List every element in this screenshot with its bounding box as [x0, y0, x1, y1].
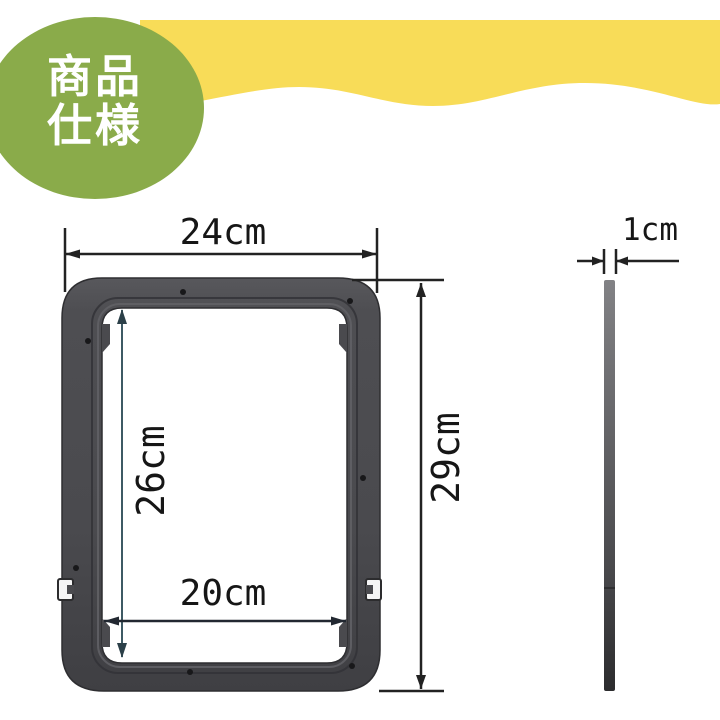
dimension-inner-height [117, 309, 127, 658]
dimension-label-inner-height: 26cm [132, 425, 170, 517]
screw-holes [73, 289, 366, 675]
dimension-label-thickness: 1cm [612, 215, 688, 246]
badge-title: 商品 仕様 [16, 52, 174, 150]
dimension-inner-width [104, 617, 346, 626]
dimension-thickness [577, 249, 679, 274]
side-profile-bar [604, 280, 615, 691]
frame-side-view [604, 280, 615, 691]
dimension-label-outer-height: 29cm [427, 412, 465, 504]
badge-title-line1: 商品 [16, 52, 174, 101]
badge-title-line2: 仕様 [16, 101, 174, 150]
dimension-label-inner-width: 20cm [153, 576, 293, 612]
product-spec-diagram: 商品 仕様 24cm 29cm 26cm 20cm 1cm [0, 0, 720, 720]
frame-front-view [58, 278, 381, 691]
banner-wave [140, 20, 720, 107]
dimension-label-outer-width: 24cm [153, 215, 293, 251]
